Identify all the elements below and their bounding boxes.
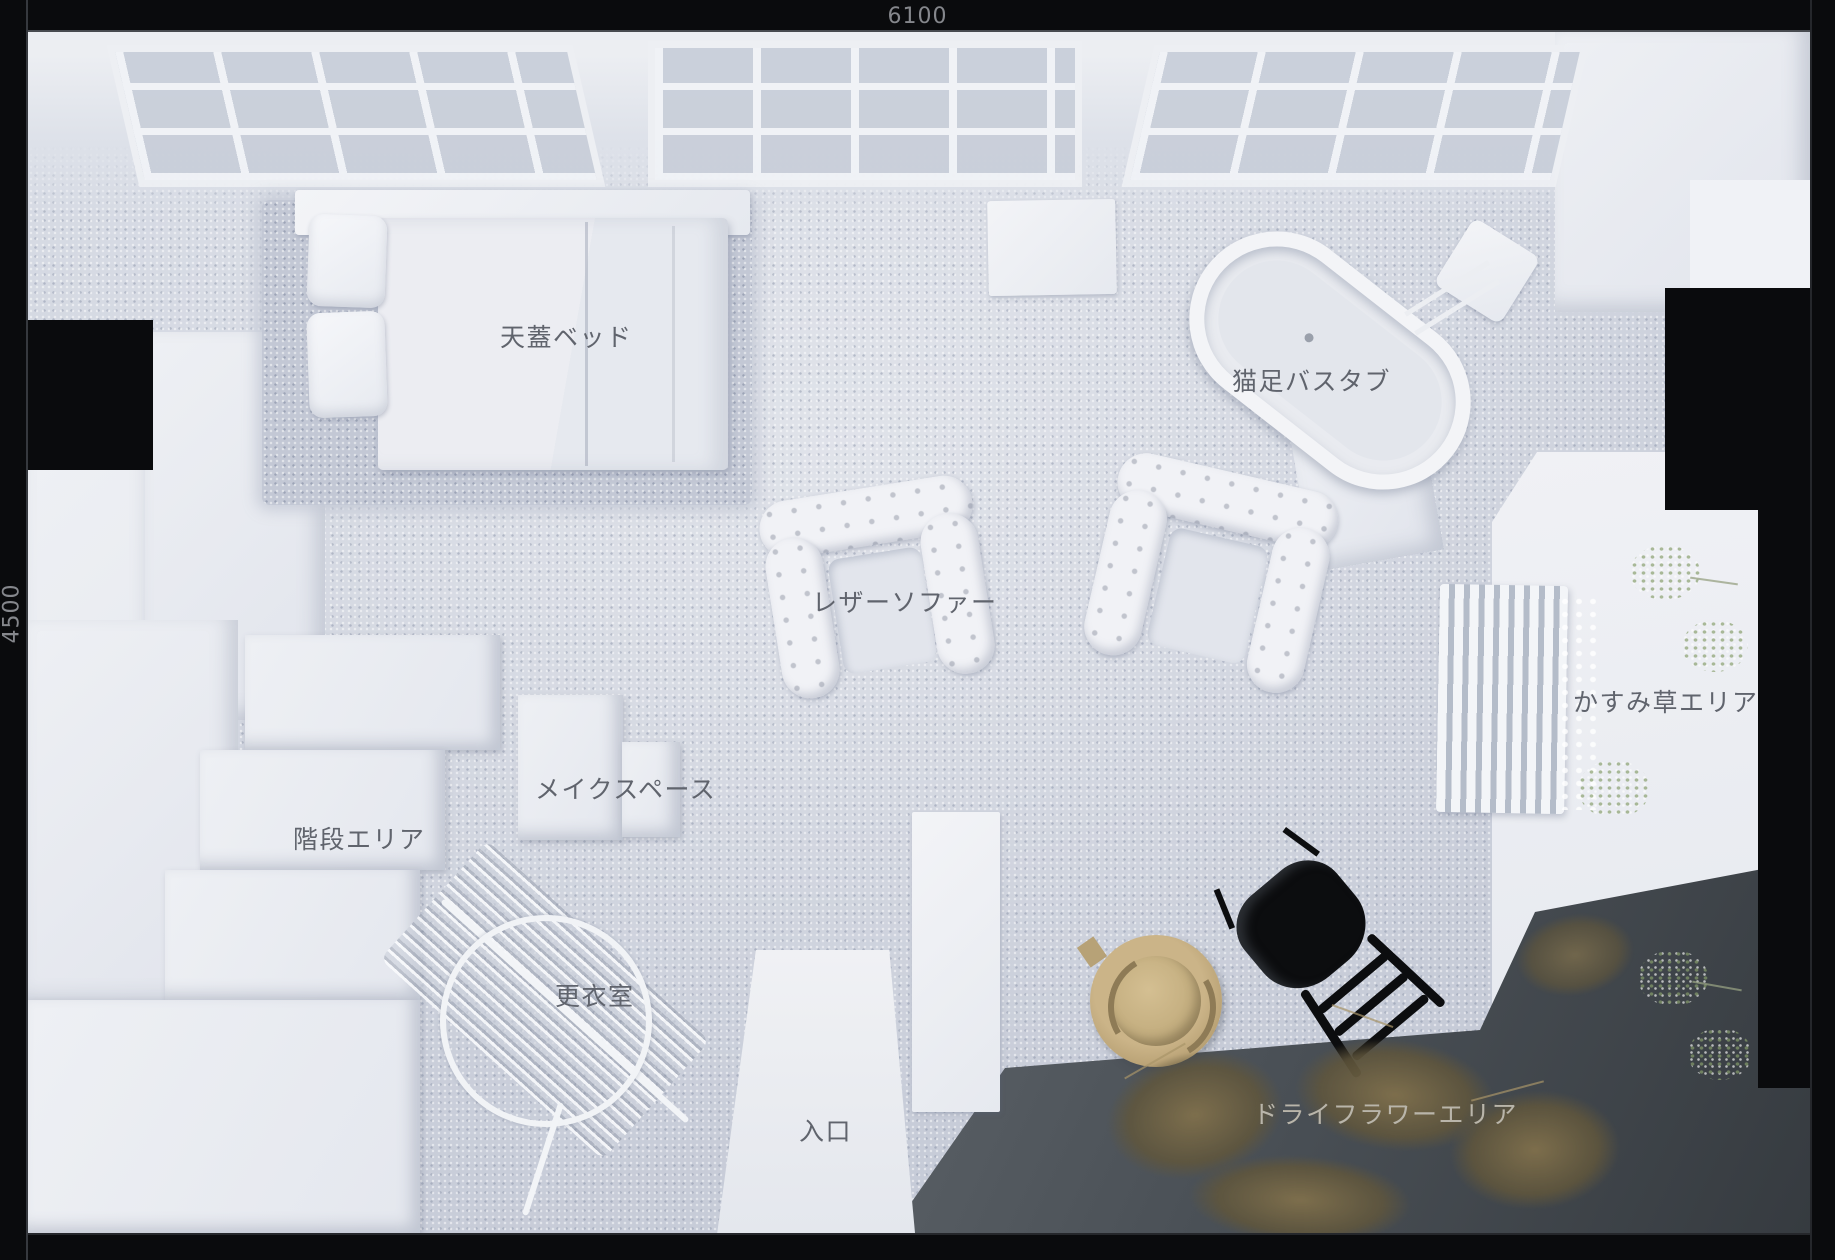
window-grid-right [1130, 52, 1580, 180]
makeup-vanity [518, 695, 623, 840]
side-table [987, 199, 1117, 296]
label-changing-room: 更衣室 [555, 977, 635, 1013]
babys-breath-sprig [1578, 760, 1650, 818]
label-leather-sofa: レザーソファー [812, 583, 998, 619]
pillow [306, 214, 387, 309]
label-babys-breath-area: かすみ草エリア [1573, 683, 1759, 719]
label-makeup-space: メイクスペース [535, 770, 716, 806]
door-panel [912, 812, 1000, 1112]
babys-breath-sprig [1688, 1028, 1752, 1080]
label-clawfoot-bathtub: 猫足バスタブ [1232, 362, 1391, 398]
right-edge-shadow [1758, 288, 1810, 1088]
dimension-width: 6100 [0, 4, 1835, 29]
pillow [306, 311, 388, 419]
floorplan-render: 天蓋ベッド 猫足バスタブ レザーソファー かすみ草エリア メイクスペース 階段エ… [0, 0, 1835, 1260]
stairs-step-1 [245, 635, 500, 750]
babys-breath-sprig [1630, 545, 1700, 600]
label-canopy-bed: 天蓋ベッド [500, 318, 633, 354]
label-dried-flower-area: ドライフラワーエリア [1253, 1095, 1518, 1131]
stairs-step-4 [28, 1000, 420, 1233]
window-grid-left [115, 52, 597, 180]
slatted-bench [1436, 584, 1568, 814]
round-clothes-rack [440, 915, 652, 1127]
label-stairs-area: 階段エリア [293, 820, 426, 856]
stairs-step-3 [165, 870, 420, 1000]
duvet-fold-line [672, 226, 675, 462]
window-grid-center [655, 48, 1075, 180]
frame-bottom-bar [0, 1233, 1835, 1260]
frame-right-bar [1810, 0, 1835, 1260]
babys-breath-sprig [1682, 620, 1748, 672]
dimension-height: 4500 [0, 554, 25, 674]
left-wall-opening [28, 320, 153, 470]
label-entrance: 入口 [799, 1112, 852, 1148]
